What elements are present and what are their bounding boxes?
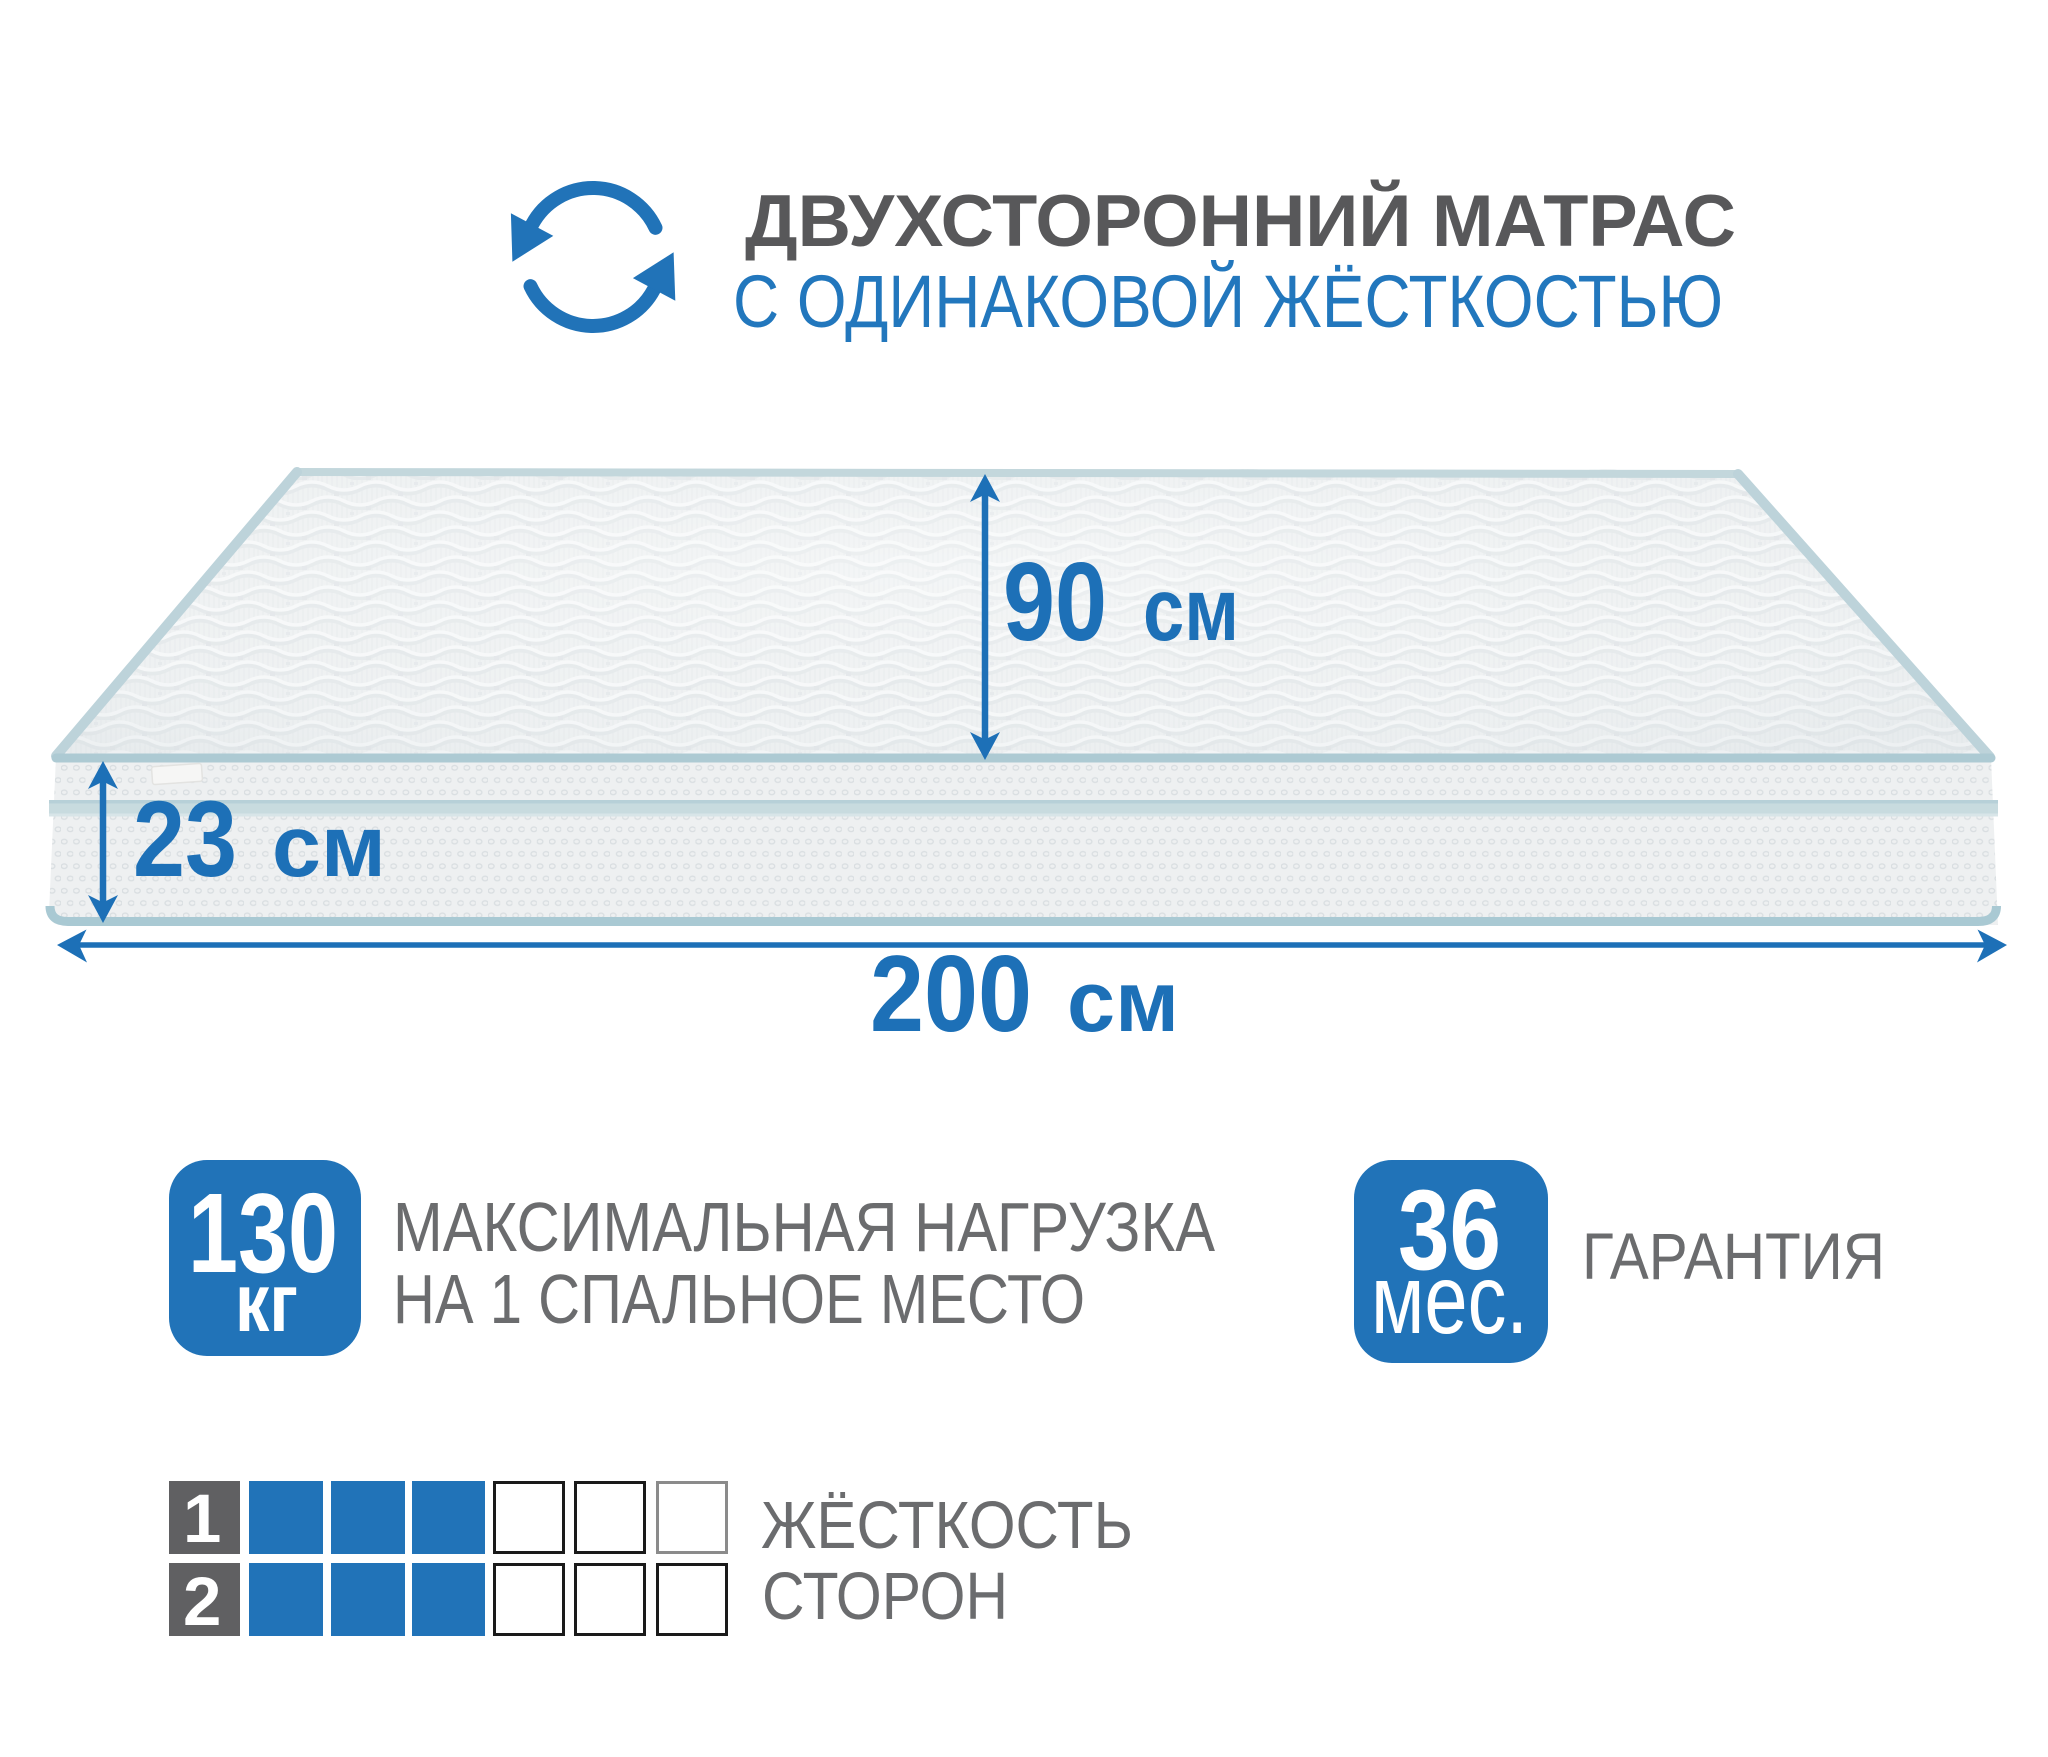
- svg-text:ГАРАНТИЯ: ГАРАНТИЯ: [1582, 1219, 1885, 1293]
- svg-text:СТОРОН: СТОРОН: [762, 1559, 1008, 1634]
- svg-text:кг: кг: [235, 1256, 298, 1349]
- svg-text:23: 23: [133, 778, 237, 899]
- svg-text:200: 200: [870, 933, 1032, 1055]
- svg-text:ДВУХСТОРОННИЙ МАТРАС: ДВУХСТОРОННИЙ МАТРАС: [745, 180, 1736, 262]
- svg-text:2: 2: [183, 1563, 221, 1640]
- svg-text:ЖЁСТКОСТЬ: ЖЁСТКОСТЬ: [761, 1488, 1133, 1563]
- svg-text:см: см: [272, 798, 386, 895]
- svg-text:С ОДИНАКОВОЙ ЖЁСТКОСТЬЮ: С ОДИНАКОВОЙ ЖЁСТКОСТЬЮ: [733, 260, 1723, 343]
- svg-text:см: см: [1067, 954, 1179, 1050]
- svg-text:НА 1 СПАЛЬНОЕ МЕСТО: НА 1 СПАЛЬНОЕ МЕСТО: [393, 1260, 1085, 1338]
- svg-text:90: 90: [1003, 540, 1107, 664]
- svg-text:см: см: [1143, 559, 1239, 659]
- svg-text:МАКСИМАЛЬНАЯ НАГРУЗКА: МАКСИМАЛЬНАЯ НАГРУЗКА: [393, 1188, 1215, 1266]
- svg-text:1: 1: [183, 1480, 221, 1557]
- svg-text:мес.: мес.: [1371, 1244, 1528, 1354]
